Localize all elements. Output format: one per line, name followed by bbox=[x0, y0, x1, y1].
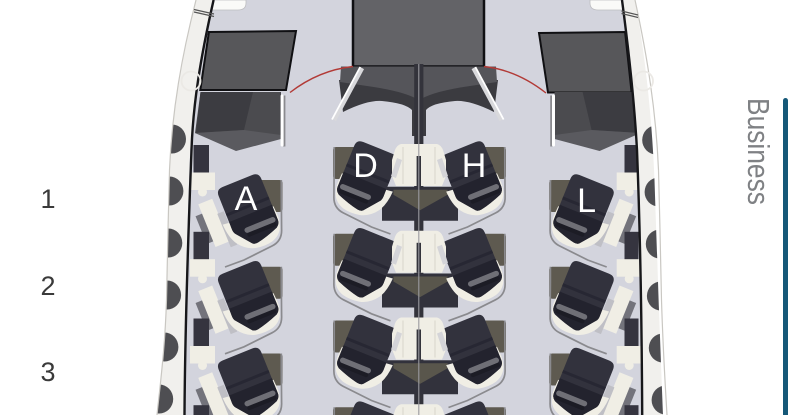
svg-text:L: L bbox=[577, 182, 596, 220]
svg-text:H: H bbox=[462, 147, 487, 185]
svg-text:D: D bbox=[353, 147, 378, 185]
svg-text:A: A bbox=[235, 180, 258, 218]
